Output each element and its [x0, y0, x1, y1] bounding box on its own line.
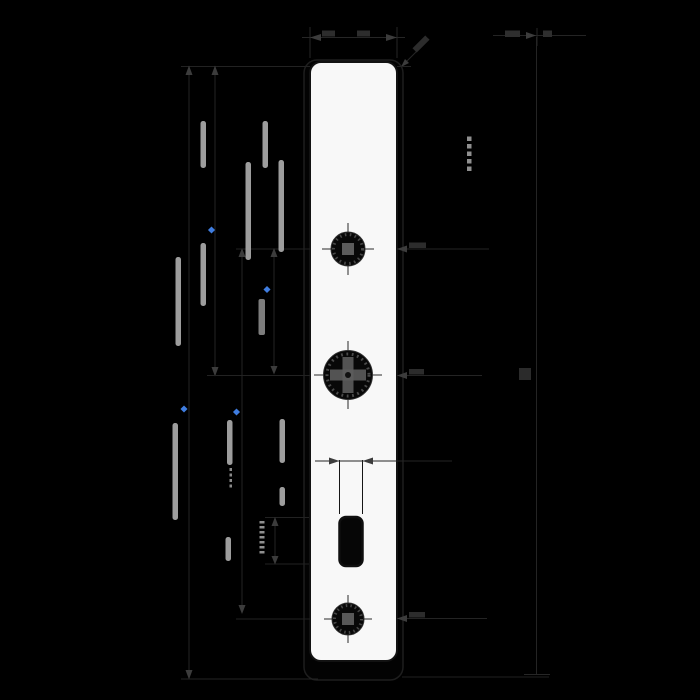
dim-text-bar-5 [201, 243, 207, 306]
vertical-text-dot-1 [467, 137, 472, 142]
drawing-viewport [0, 0, 700, 700]
knob3-leader-text-blob [409, 612, 425, 618]
slot-height-text-dash-1 [260, 521, 265, 524]
small-text-dot-4 [230, 485, 233, 488]
knob1-to-knob2-arrow-bottom [271, 366, 278, 375]
vertical-text-dot-5 [467, 167, 472, 172]
overall-height-arrow-bottom [186, 670, 193, 680]
dim-text-bar-11 [226, 537, 232, 561]
vertical-text-dot-4 [467, 159, 472, 164]
dim-text-bar-2 [263, 121, 269, 168]
dim-text-bar-3 [246, 162, 252, 260]
top-dim-arrow-right [386, 34, 397, 41]
knob1-center-blob [342, 243, 354, 255]
snap-marker-blue-3 [180, 405, 187, 412]
knob3-center-blob [342, 613, 354, 625]
slot-height-arrow-top [272, 517, 279, 526]
vertical-text-dot-3 [467, 152, 472, 157]
knob2-leader-text-blob [409, 369, 424, 375]
corner-radius-text-blob [413, 36, 430, 53]
small-text-dot-1 [230, 468, 233, 471]
dim-text-bar-9 [173, 423, 179, 520]
top-dim-arrow-left [310, 34, 321, 41]
dim-text-bar-8 [280, 419, 286, 463]
top-dim-text-blob-2 [357, 31, 370, 37]
snap-marker-blue-4 [233, 408, 240, 415]
small-text-dot-3 [230, 479, 233, 482]
slot-height-text-dash-2 [260, 526, 265, 529]
knob1-to-knob2-dim-text-bar [259, 299, 266, 335]
vertical-text-dot-2 [467, 144, 472, 149]
slot-height-text-dash-3 [260, 531, 265, 534]
right-dim-top-text-blob-2 [543, 31, 552, 38]
right-dim-top-arrow [526, 32, 536, 39]
knob1-to-knob3-arrow-bottom [239, 605, 246, 614]
slot-height-text-dash-6 [260, 546, 265, 549]
dim-text-bar-4 [279, 160, 285, 252]
dim-text-bar-1 [201, 121, 207, 168]
slot-height-text-dash-7 [260, 551, 265, 554]
dim-text-bar-6 [176, 257, 182, 346]
drawing-canvas[interactable] [0, 0, 700, 700]
right-dim-top-text-blob-1 [505, 31, 520, 38]
slot-height-text-dash-5 [260, 541, 265, 544]
snap-marker-blue-2 [263, 286, 270, 293]
knob2-center-dot [345, 372, 351, 378]
knob1-leader-text-blob [409, 243, 426, 249]
small-text-dot-2 [230, 474, 233, 477]
dim-text-bar-10 [280, 487, 286, 506]
right-height-dim-text-blob [519, 368, 531, 380]
dim-text-bar-7 [227, 420, 233, 465]
slot-height-text-dash-4 [260, 536, 265, 539]
top-dim-text-blob-1 [322, 31, 335, 37]
slot-opening [340, 517, 363, 566]
snap-marker-blue-1 [208, 226, 215, 233]
slot-height-arrow-bottom [272, 556, 279, 565]
